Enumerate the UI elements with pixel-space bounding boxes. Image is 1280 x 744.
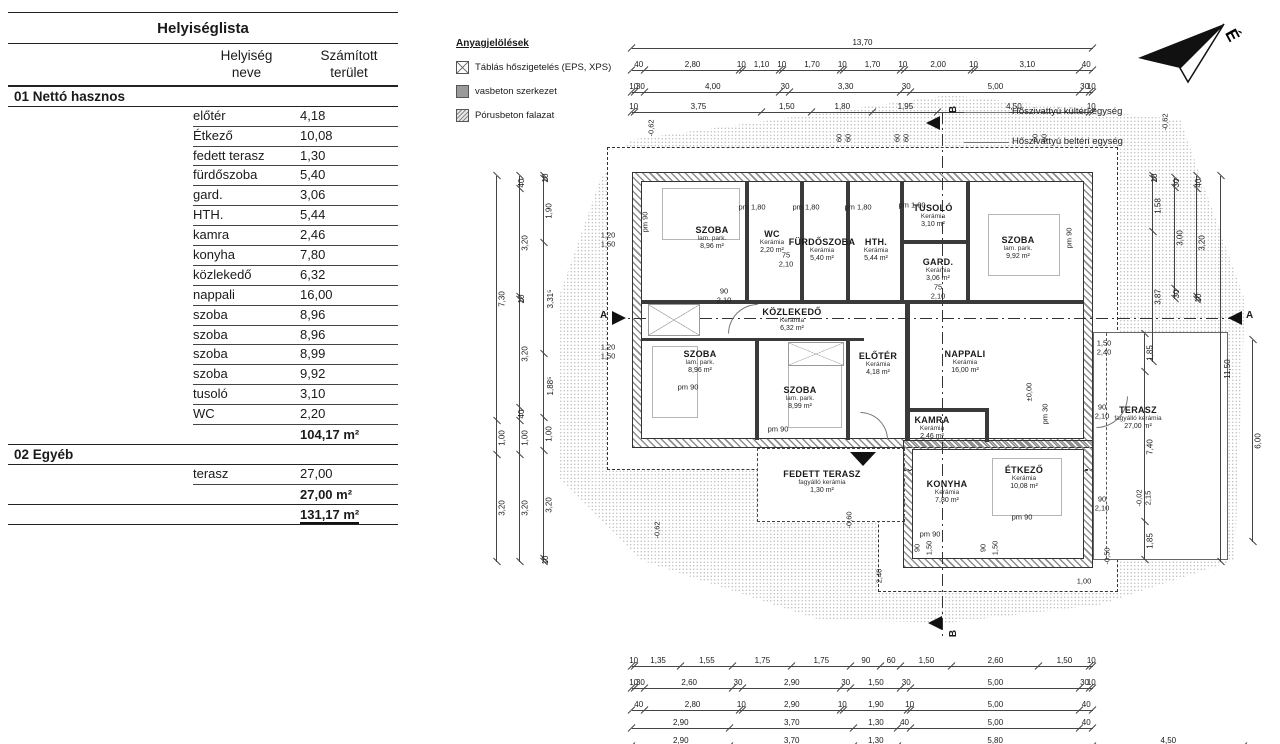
dimension-label: 13,70	[852, 38, 872, 47]
section-arrow-icon	[928, 616, 942, 630]
dimension-label: 10	[1194, 294, 1203, 303]
dimension-label: 2,80	[685, 700, 701, 709]
section-marker-a-left: A	[600, 310, 607, 321]
dimension-label: 2,90	[784, 700, 800, 709]
dimension-segment: 5,80	[898, 734, 1093, 744]
entrance-marker-icon	[850, 452, 876, 466]
window-size-tag: 1,20 1,50	[601, 343, 616, 360]
parapet-tag: pm 90	[678, 384, 699, 393]
door-size-tag: 75 2,10	[779, 251, 794, 268]
dimension-segment: 4,50	[1093, 734, 1244, 744]
dimension-segment: 30	[780, 80, 790, 92]
dimension-segment: 1,75	[733, 654, 792, 666]
dimension-segment: 2,00	[905, 58, 972, 70]
dimension-segment: 1,30	[854, 734, 898, 744]
dimension-label: 40	[1082, 60, 1091, 69]
dimension-segment: 7,30	[497, 176, 509, 421]
window-size-tag: 1,20 1,50	[601, 231, 616, 248]
dimension-label: 1,50	[919, 656, 935, 665]
dimension-label: 5,00	[988, 700, 1004, 709]
dimension-label: 1,75	[813, 656, 829, 665]
dimension-segment: 1,50	[851, 676, 901, 688]
dimension-label: 10	[1087, 678, 1096, 687]
door-size-tag: 90 2,10	[1095, 495, 1110, 512]
level-marker-tag: ±0,00	[1026, 383, 1035, 402]
dim-chain-left-3: 101,903,31⁵1,88⁵1,003,2010	[543, 176, 556, 562]
dimension-label: 1,80	[835, 102, 851, 111]
dimension-label: 30	[902, 678, 911, 687]
dimension-label: 5,00	[988, 82, 1004, 91]
door-size-tag: 90 2,10	[717, 287, 732, 304]
dimension-segment: 40	[1197, 176, 1209, 189]
dimension-label: 40	[634, 700, 643, 709]
dimension-segment: 1,70	[844, 58, 901, 70]
dimension-label: 30	[1172, 289, 1181, 298]
dimension-label: 3,10	[1020, 60, 1036, 69]
dimension-segment: 3,10	[975, 58, 1079, 70]
level-marker-tag: -0,60	[846, 511, 855, 528]
dimension-label: 1,00	[520, 430, 529, 446]
window-symbol	[788, 342, 844, 366]
dimension-segment: 1,88⁵	[544, 354, 556, 417]
dimension-label: 3,20	[544, 497, 553, 513]
dimension-segment: 10	[544, 559, 556, 562]
dimension-segment: 11,50	[1221, 176, 1233, 562]
dimension-label: 11,50	[1223, 359, 1232, 378]
bed-symbol	[988, 214, 1060, 276]
section-arrow-icon	[612, 311, 626, 325]
dimension-segment: 30	[733, 676, 743, 688]
dim-chain-top-openings: 402,80101,10101,70101,70102,00103,1040	[632, 58, 1093, 71]
dimension-segment: 3,20	[520, 189, 532, 296]
heat-pump-indoor-callout: Hőszivattyú beltéri egység	[1012, 136, 1123, 147]
dimension-segment: 10	[1090, 676, 1093, 688]
dimension-segment: 3,20	[497, 455, 509, 562]
dimension-label: 2,90	[673, 718, 689, 727]
section-axis-b	[942, 112, 943, 640]
overhang-dim-tag: 60 60	[835, 134, 852, 142]
dimension-label: 1,75	[755, 656, 771, 665]
dimension-label: 3,30	[838, 82, 854, 91]
dimension-label: 2,80	[685, 60, 701, 69]
dimension-label: 4,00	[705, 82, 721, 91]
dimension-label: 1,90	[868, 700, 884, 709]
dimension-label: 30	[1172, 179, 1181, 188]
dimension-segment: 5,00	[911, 80, 1079, 92]
partition-wall	[642, 300, 1083, 304]
dimension-label: 30	[734, 678, 743, 687]
dimension-segment: 1,90	[544, 179, 556, 243]
dimension-tag: 90	[980, 544, 989, 552]
dimension-segment: 40	[898, 716, 911, 728]
dimension-label: 40	[1082, 700, 1091, 709]
dimension-label: 30	[636, 82, 645, 91]
finish-height-tag: pm 1,80	[898, 202, 925, 211]
dimension-segment: 3,20	[520, 300, 532, 407]
dimension-segment: 2,80	[645, 698, 739, 710]
dimension-label: 1,95	[898, 102, 914, 111]
drawing-canvas: Helyiséglista Helyiségneve Számítottterü…	[0, 0, 1280, 744]
dimension-segment: 90	[851, 654, 881, 666]
partition-wall	[642, 338, 864, 341]
north-arrow-icon: É	[1132, 10, 1252, 90]
heat-pump-outdoor-callout: Hőszivattyú kültéri egység	[1012, 106, 1122, 117]
dimension-label: 1,90	[544, 203, 553, 219]
dimension-segment: 1,35	[635, 654, 680, 666]
dimension-segment: 1,85	[1145, 334, 1157, 372]
level-marker-tag: -0,50	[1104, 547, 1113, 564]
window-size-tag: 1,50 2,40	[1097, 339, 1112, 356]
dimension-segment: 10	[1197, 297, 1209, 300]
dimension-segment: 40	[520, 176, 532, 189]
dimension-segment: 2,90	[743, 676, 841, 688]
dimension-segment: 30	[635, 676, 645, 688]
dimension-tag: 2,40	[876, 569, 885, 584]
partition-wall	[800, 181, 804, 303]
dimension-segment: 60	[881, 654, 901, 666]
dimension-label: 40	[634, 60, 643, 69]
dimension-segment: 3,00	[1175, 188, 1187, 289]
dimension-label: 5,80	[987, 736, 1003, 744]
dimension-label: 1,00	[497, 430, 506, 446]
dimension-tag: 1,50	[992, 541, 1001, 556]
dimension-label: 3,75	[691, 102, 707, 111]
dimension-segment: 2,60	[645, 676, 732, 688]
dimension-label: 7,30	[497, 291, 506, 307]
dimension-label: 1,50	[1057, 656, 1073, 665]
dimension-segment: 3,20	[1197, 189, 1209, 296]
dimension-label: 3,87	[1153, 289, 1162, 305]
level-marker-tag: -0,62	[1162, 113, 1171, 130]
dimension-label: 90	[861, 656, 870, 665]
dim-chain-left-1: 7,301,003,20	[496, 176, 509, 562]
dimension-segment: 1,55	[681, 654, 733, 666]
dimension-segment: 10	[1090, 80, 1093, 92]
section-marker-b-bottom: B	[948, 630, 959, 637]
dimension-label: 30	[902, 82, 911, 91]
bed-symbol	[662, 188, 740, 240]
terrace-area	[1093, 332, 1228, 560]
dimension-segment: 40	[520, 408, 532, 421]
dimension-label: 3,00	[1175, 231, 1184, 247]
dimension-label: 2,60	[988, 656, 1004, 665]
dimension-segment: 3,75	[635, 100, 761, 112]
dimension-label: 3,20	[520, 346, 529, 362]
dim-chain-bottom-2: 10302,60302,90301,50305,003010	[632, 676, 1093, 689]
dimension-segment: 1,00	[544, 418, 556, 452]
dimension-segment: 2,90	[743, 698, 841, 710]
dimension-segment: 30	[841, 676, 851, 688]
dimension-label: 60	[887, 656, 896, 665]
dimension-label: 1,35	[650, 656, 666, 665]
dimension-segment: 40	[1080, 698, 1093, 710]
dimension-label: 4,50	[1161, 736, 1177, 744]
partition-wall	[846, 338, 850, 440]
dimension-segment: 3,70	[730, 716, 855, 728]
level-marker-tag: -0,62	[648, 119, 657, 136]
dimension-segment: 40	[1080, 58, 1093, 70]
dim-chain-top-walls: 10304,00303,30305,003010	[632, 80, 1093, 93]
dimension-segment: 30	[1175, 289, 1187, 299]
dimension-segment: 3,20	[544, 451, 556, 559]
dimension-label: 5,00	[988, 678, 1004, 687]
dimension-label: 1,50	[868, 678, 884, 687]
dimension-label: 40	[1194, 178, 1203, 187]
dimension-segment: 1,90	[844, 698, 908, 710]
dimension-label: 30	[781, 82, 790, 91]
dimension-label: 1,55	[699, 656, 715, 665]
door-size-tag: 90 2,10	[1095, 403, 1110, 420]
dimension-label: 3,70	[784, 718, 800, 727]
dimension-label: 40	[517, 178, 526, 187]
dim-chain-right-overall: 11,50	[1220, 176, 1233, 562]
dimension-label: 1,70	[865, 60, 881, 69]
dim-chain-bottom-5: 2,903,701,305,804,50	[632, 734, 1244, 744]
dimension-label: 2,00	[930, 60, 946, 69]
dim-chain-right-3: 403,2010	[1196, 176, 1209, 300]
overhang-dim-tag: 60 60	[893, 134, 910, 142]
dimension-label: 1,58	[1153, 198, 1162, 214]
dimension-segment: 3,70	[730, 734, 854, 744]
dimension-segment: 1,95	[873, 100, 939, 112]
dimension-segment: 5,00	[911, 676, 1079, 688]
dim-chain-right-2: 303,0030	[1174, 178, 1187, 299]
dimension-label: 3,20	[1197, 235, 1206, 251]
parapet-tag: pm 90	[642, 212, 651, 233]
parapet-tag: pm 90	[1066, 228, 1075, 249]
dimension-label: 40	[1082, 718, 1091, 727]
dimension-label: 1,70	[804, 60, 820, 69]
north-letter: É	[1221, 26, 1243, 45]
dimension-tag: 90	[914, 544, 923, 552]
dimension-segment: 1,30	[854, 716, 898, 728]
dimension-label: 3,20	[520, 500, 529, 516]
dimension-segment: 30	[1175, 178, 1187, 188]
dimension-segment: 1,85	[1145, 522, 1157, 560]
dimension-segment: 1,80	[812, 100, 873, 112]
level-marker-tag: -0,62	[654, 521, 663, 538]
dimension-label: 2,90	[673, 736, 689, 744]
section-arrow-icon	[926, 116, 940, 130]
dimension-segment: 1,75	[792, 654, 851, 666]
dimension-segment: 3,30	[790, 80, 901, 92]
dimension-segment: 40	[632, 58, 645, 70]
dimension-tag: 1,00	[1077, 578, 1092, 587]
dimension-segment: 1,70	[783, 58, 840, 70]
dim-chain-bottom-4: 2,903,701,30405,0040	[632, 716, 1093, 729]
parapet-tag: pm 90	[1012, 514, 1033, 523]
floor-plan: SZOBAlam. park.8,96 m² WCKerámia2,20 m² …	[0, 0, 1280, 744]
dimension-label: 1,30	[868, 736, 884, 744]
partition-wall	[905, 408, 989, 412]
dimension-label: 1,00	[544, 427, 553, 443]
dimension-label: 30	[636, 678, 645, 687]
finish-height-tag: pm 1,80	[738, 204, 765, 213]
dimension-segment: 1,00	[520, 421, 532, 455]
dimension-label: 2,90	[784, 678, 800, 687]
dimension-label: 40	[900, 718, 909, 727]
finish-height-tag: pm 1,80	[792, 204, 819, 213]
dimension-segment: 2,90	[632, 716, 730, 728]
partition-wall	[900, 240, 968, 244]
dim-chain-bottom-1: 101,351,551,751,7590601,502,601,5010	[632, 654, 1093, 667]
dim-chain-terrace: 1,857,401,85	[1144, 334, 1157, 560]
partition-wall	[905, 300, 910, 440]
dimension-label: 10	[1087, 656, 1096, 665]
dimension-label: 3,31⁵	[546, 289, 555, 308]
partition-wall	[755, 338, 759, 440]
dimension-segment: 2,90	[632, 734, 730, 744]
dim-chain-bottom-3: 402,80102,90101,90105,0040	[632, 698, 1093, 711]
dimension-label: 10	[541, 556, 550, 565]
dimension-segment: 7,40	[1145, 372, 1157, 523]
dimension-segment: 5,00	[911, 698, 1079, 710]
dimension-label: 1,85	[1145, 345, 1154, 361]
dimension-label: 5,00	[988, 718, 1004, 727]
dimension-label: 1,50	[779, 102, 795, 111]
section-marker-a-right: A	[1246, 310, 1253, 321]
dimension-segment: 40	[1080, 716, 1093, 728]
dimension-segment: 1,00	[497, 421, 509, 455]
dimension-label: 1,30	[868, 718, 884, 727]
dimension-label: 40	[517, 410, 526, 419]
dimension-segment: 40	[632, 698, 645, 710]
door-size-tag: 75 2,10	[931, 283, 946, 300]
dimension-segment: 4,00	[645, 80, 780, 92]
terrace-edge-line	[1106, 333, 1107, 559]
dimension-segment: 1,50	[901, 654, 951, 666]
dimension-label: 30	[841, 678, 850, 687]
dim-chain-terrace-depth: 6,00	[1252, 340, 1265, 542]
covered-terrace-area	[757, 448, 905, 522]
dimension-segment: 1,50	[1039, 654, 1089, 666]
partition-wall	[745, 181, 749, 303]
dimension-segment: 1,58	[1153, 179, 1165, 232]
dimension-segment: 6,00	[1253, 340, 1265, 542]
dimension-label: 2,60	[681, 678, 697, 687]
dimension-label: 3,70	[784, 736, 800, 744]
dimension-label: 3,20	[497, 501, 506, 517]
section-arrow-icon	[1228, 311, 1242, 325]
dimension-segment: 1,10	[743, 58, 780, 70]
dimension-segment: 30	[901, 676, 911, 688]
dim-chain-left-2: 403,20103,20401,003,20	[519, 176, 532, 562]
partition-wall	[985, 408, 989, 442]
dimension-segment: 30	[901, 80, 911, 92]
parapet-tag: pm 90	[768, 426, 789, 435]
dim-chain-top-overall: 13,70	[632, 36, 1093, 49]
finish-height-tag: pm 1,80	[844, 204, 871, 213]
dimension-label: 1,10	[754, 60, 770, 69]
dimension-segment: 10	[1090, 654, 1093, 666]
parapet-tag: pm 30	[1042, 404, 1051, 425]
partition-wall	[846, 181, 850, 303]
dimension-segment: 2,80	[645, 58, 739, 70]
dining-table-symbol	[992, 458, 1062, 516]
dimension-segment: 3,31⁵	[544, 243, 556, 354]
dimension-segment: 3,20	[520, 455, 532, 562]
dimension-label: 6,00	[1253, 433, 1262, 449]
dimension-label: 10	[1087, 82, 1096, 91]
parapet-tag: pm 90	[920, 531, 941, 540]
dimension-label: 3,20	[520, 235, 529, 251]
dimension-segment: 13,70	[632, 36, 1093, 48]
dimension-label: 7,40	[1145, 439, 1154, 455]
dimension-tag: 1,50	[926, 541, 935, 556]
dimension-label: 1,88⁵	[546, 377, 555, 396]
section-marker-b-top: B	[948, 106, 959, 113]
dimension-segment: 30	[635, 80, 645, 92]
dimension-label: 1,85	[1145, 533, 1154, 549]
dimension-segment: 1,50	[762, 100, 812, 112]
section-axis-a	[612, 318, 1240, 319]
dimension-segment: 5,00	[911, 716, 1079, 728]
dimension-segment: 2,60	[952, 654, 1039, 666]
window-symbol	[648, 304, 700, 336]
